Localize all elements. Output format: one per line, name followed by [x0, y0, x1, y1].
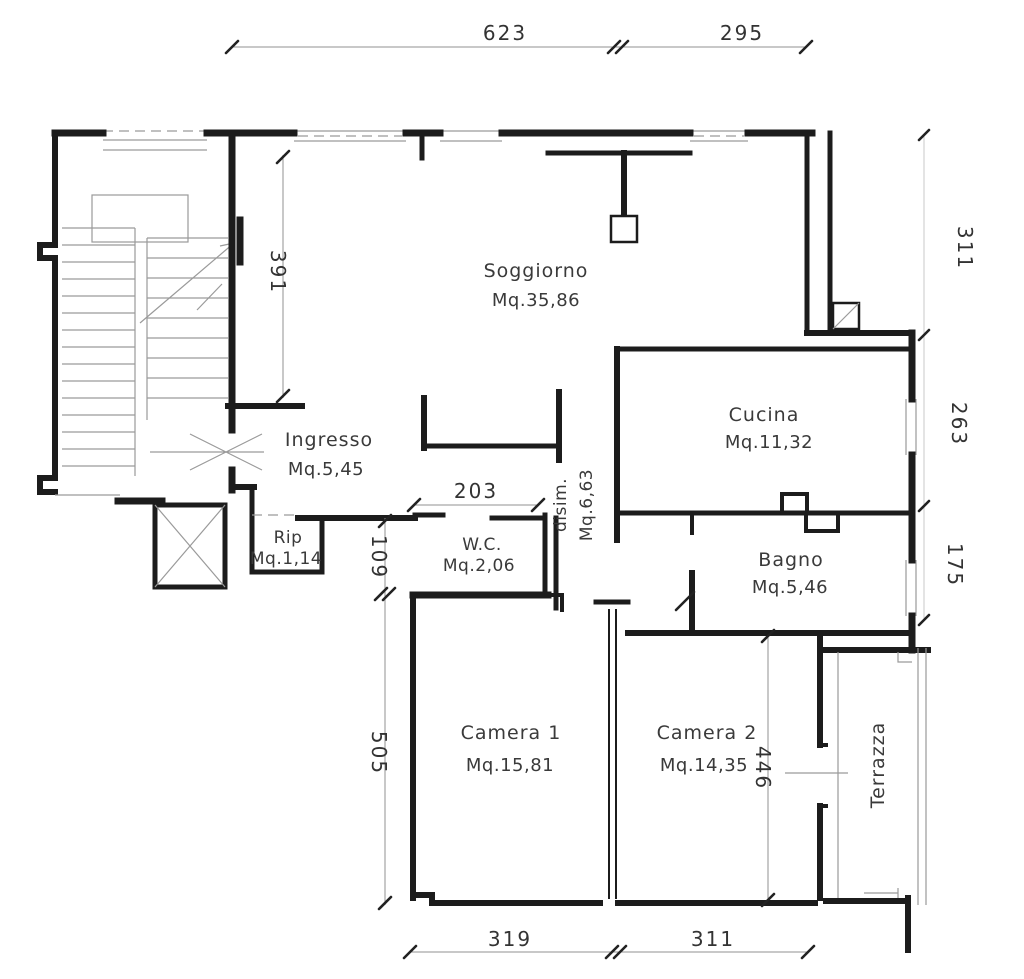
dim-top-295: 295: [720, 21, 764, 45]
dim-camera2-446: 446: [751, 746, 775, 790]
entry-door-swing: [150, 434, 264, 470]
floor-plan-page: 623 295 319 311 391 109 505 203 446 311 …: [0, 0, 1024, 979]
dim-wc-203: 203: [454, 479, 498, 503]
room-label-bagno: Bagno: [758, 549, 823, 571]
dim-bottom-311: 311: [691, 927, 735, 951]
floor-plan-drawing: 623 295 319 311 391 109 505 203 446 311 …: [0, 0, 1024, 979]
room-label-soggiorno: Soggiorno: [484, 260, 589, 282]
staircase: [62, 195, 234, 476]
room-area-disimpegno: Mq.6,63: [577, 469, 597, 541]
room-area-soggiorno: Mq.35,86: [492, 290, 580, 311]
dim-top-623: 623: [483, 21, 527, 45]
terrace-parapet: [785, 648, 926, 905]
dim-left-505: 505: [367, 731, 391, 775]
stair-direction-arrow: [140, 243, 234, 323]
room-label-rip: Rip: [274, 528, 303, 548]
dim-bottom-319: 319: [488, 927, 532, 951]
room-area-camera2: Mq.14,35: [660, 755, 748, 776]
room-label-terrazza: Terrazza: [867, 722, 889, 810]
room-label-camera2: Camera 2: [657, 722, 758, 744]
elevator-shaft: [155, 505, 225, 587]
room-area-bagno: Mq.5,46: [752, 577, 828, 598]
room-label-ingresso: Ingresso: [285, 429, 373, 451]
room-label-disimpegno: disim.: [551, 478, 571, 532]
room-area-ingresso: Mq.5,45: [288, 459, 364, 480]
room-label-cucina: Cucina: [729, 404, 800, 426]
room-label-camera1: Camera 1: [461, 722, 562, 744]
dim-right-263: 263: [947, 402, 971, 446]
room-label-wc: W.C.: [462, 535, 502, 555]
window-bagno: [906, 560, 916, 616]
room-area-cucina: Mq.11,32: [725, 432, 813, 453]
room-labels: Soggiorno Mq.35,86 Cucina Mq.11,32 Ingre…: [250, 260, 889, 809]
dim-left-109: 109: [367, 535, 391, 579]
room-area-wc: Mq.2,06: [443, 556, 515, 576]
window-cucina: [906, 399, 916, 455]
room-area-rip: Mq.1,14: [250, 549, 322, 569]
room-area-camera1: Mq.15,81: [466, 755, 554, 776]
dim-right-311: 311: [953, 226, 977, 270]
dim-left-391: 391: [266, 250, 290, 294]
dim-right-175: 175: [943, 543, 967, 587]
